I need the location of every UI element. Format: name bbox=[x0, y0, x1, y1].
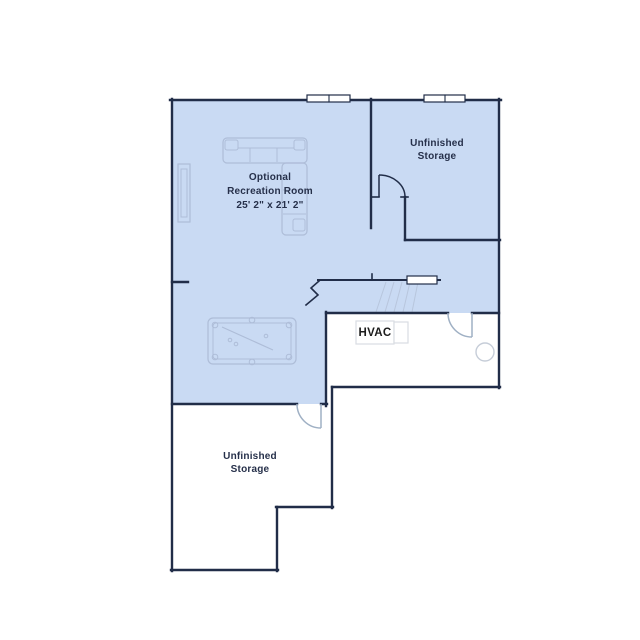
lower-storage-label-line1: Unfinished bbox=[223, 451, 277, 462]
upper-storage-label-line2: Storage bbox=[418, 151, 457, 162]
upper-storage-label-line1: Unfinished bbox=[410, 138, 464, 149]
floor-plan-svg: Optional Recreation Room 25' 2" x 21' 2"… bbox=[0, 0, 640, 640]
floor-plan-page: Optional Recreation Room 25' 2" x 21' 2"… bbox=[0, 0, 640, 640]
lower-storage-label-line2: Storage bbox=[231, 464, 270, 475]
door-hvac bbox=[448, 313, 472, 337]
door-lower-storage bbox=[297, 404, 321, 428]
recreation-room-label-line2: Recreation Room bbox=[227, 186, 313, 197]
hvac-label: HVAC bbox=[359, 327, 392, 339]
recreation-room-dimensions: 25' 2" x 21' 2" bbox=[236, 200, 303, 211]
window-top-right bbox=[424, 95, 465, 102]
window-top-left bbox=[307, 95, 350, 102]
sump-pit-circle bbox=[476, 343, 494, 361]
stair-landing bbox=[407, 276, 437, 284]
recreation-room-label-line1: Optional bbox=[249, 172, 291, 183]
